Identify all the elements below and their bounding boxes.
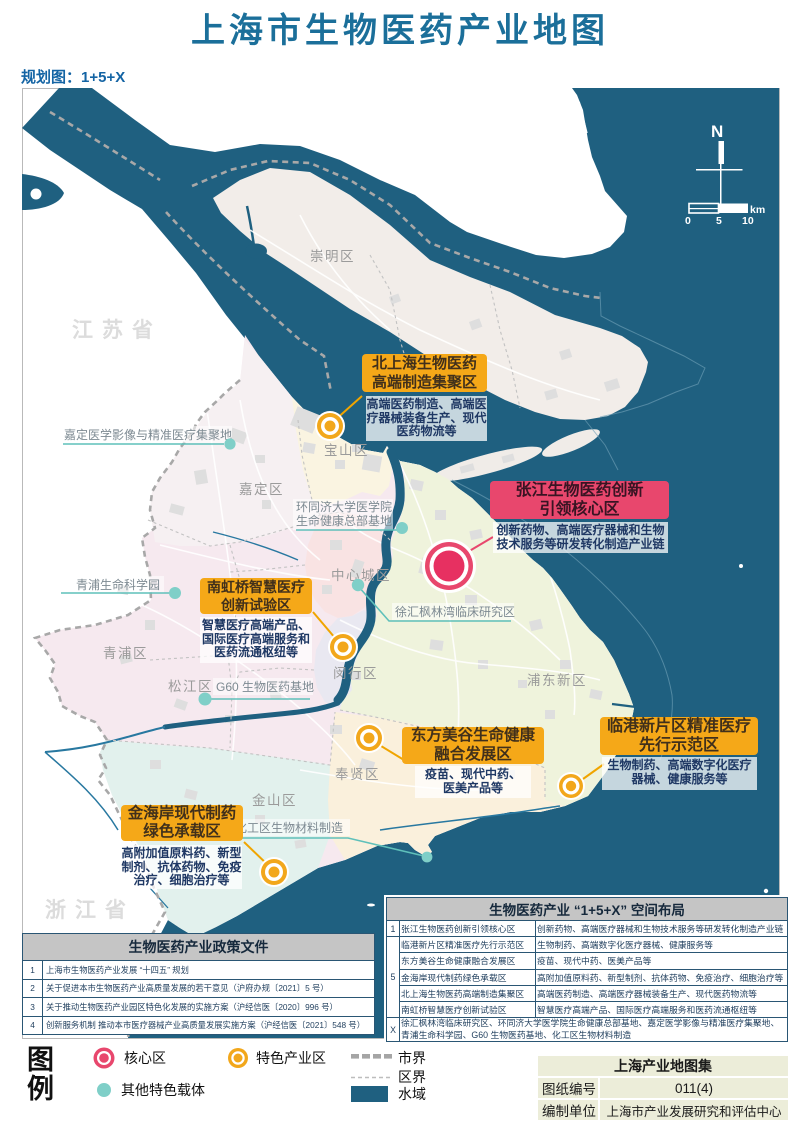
svg-text:特色产业区: 特色产业区 [256, 1050, 326, 1066]
svg-text:金山区: 金山区 [252, 793, 297, 808]
svg-text:区界: 区界 [398, 1069, 426, 1085]
svg-text:生命健康总部基地: 生命健康总部基地 [296, 513, 392, 528]
svg-text:N: N [711, 122, 723, 141]
svg-text:青浦区: 青浦区 [103, 646, 148, 661]
svg-text:闵行区: 闵行区 [333, 666, 378, 681]
svg-text:G60 生物医药基地: G60 生物医药基地 [216, 680, 314, 694]
svg-text:核心区: 核心区 [124, 1050, 166, 1066]
svg-text:其他特色载体: 其他特色载体 [121, 1082, 205, 1098]
svg-text:10: 10 [742, 215, 754, 227]
svg-text:市界: 市界 [398, 1050, 426, 1066]
svg-text:奉贤区: 奉贤区 [335, 767, 380, 782]
svg-text:崇明区: 崇明区 [310, 249, 355, 264]
svg-text:5: 5 [716, 215, 722, 227]
svg-text:浙江省: 浙江省 [45, 899, 135, 922]
svg-text:嘉定医学影像与精准医疗集聚地: 嘉定医学影像与精准医疗集聚地 [64, 427, 232, 442]
svg-text:青浦生命科学园: 青浦生命科学园 [76, 577, 160, 592]
svg-text:江苏省: 江苏省 [72, 319, 162, 342]
svg-text:嘉定区: 嘉定区 [239, 482, 284, 497]
svg-text:化工区生物材料制造: 化工区生物材料制造 [235, 821, 343, 835]
svg-text:km: km [750, 204, 765, 216]
svg-text:松江区: 松江区 [168, 679, 213, 694]
svg-text:宝山区: 宝山区 [324, 443, 369, 458]
svg-text:浦东新区: 浦东新区 [527, 673, 587, 688]
svg-text:0: 0 [685, 215, 691, 227]
svg-text:徐汇枫林湾临床研究区: 徐汇枫林湾临床研究区 [395, 604, 515, 619]
svg-text:水域: 水域 [398, 1086, 426, 1102]
svg-text:环同济大学医学院: 环同济大学医学院 [296, 499, 392, 514]
